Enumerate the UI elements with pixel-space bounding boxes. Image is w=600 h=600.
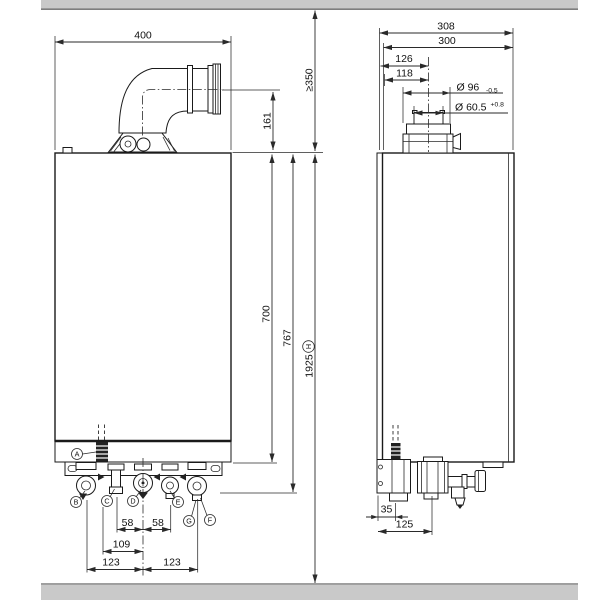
dim-depth-308: 308 (437, 21, 455, 33)
dim-height-700: 700 (261, 305, 273, 323)
condensate-siphon-side (391, 425, 401, 462)
dim-109: 109 (113, 539, 131, 551)
casing-top-clip (63, 148, 72, 154)
flue-end-cap (213, 64, 221, 114)
flue-base (403, 134, 453, 153)
floor-slab (41, 584, 578, 600)
gas-cock-side (452, 487, 465, 498)
dim-dia-60-5-tolerance: +0.8 (491, 102, 505, 109)
dim-126: 126 (395, 53, 413, 65)
connection-group-front (65, 462, 222, 501)
wall-mounting-rail (377, 153, 383, 460)
callout-d: D (130, 497, 135, 506)
dim-height-767: 767 (282, 329, 294, 347)
flue-elbow (109, 64, 225, 152)
dim-dia-96: Ø 96 (457, 82, 480, 94)
front-casing (55, 153, 231, 441)
dim-35: 35 (381, 504, 393, 516)
union-nut (162, 464, 178, 470)
connection-group-side (377, 457, 486, 509)
union-nut (108, 464, 124, 470)
union-nut (76, 463, 96, 470)
callout-a: A (75, 450, 80, 459)
dim-height-1925: 1925 (304, 354, 316, 378)
side-view (377, 57, 514, 509)
dim-123-right: 123 (163, 557, 181, 569)
dim-58-right: 58 (152, 517, 164, 529)
casing-bottom-lip (483, 462, 503, 468)
callout-b: B (74, 498, 79, 507)
bracket-side (377, 460, 411, 494)
dim-clearance-350: ≥350 (304, 68, 316, 91)
front-view (55, 64, 231, 501)
union-nut (188, 463, 206, 470)
drain-stub (390, 493, 408, 501)
valve-knob (475, 471, 486, 492)
gas-pipe-side (448, 477, 462, 488)
valve-assembly-side (418, 462, 449, 494)
dim-125: 125 (396, 519, 414, 531)
ceiling-slab (41, 0, 578, 9)
valve-c (110, 470, 123, 494)
drawing-canvas: 400 161 ≥350 700 767 1925 H 58 58 109 (0, 0, 600, 600)
valve-f (188, 477, 207, 501)
dim-dia-60-5: Ø 60.5 (455, 102, 487, 114)
dim-flue-161: 161 (262, 112, 274, 130)
dim-58-left: 58 (122, 517, 134, 529)
callout-f: F (208, 516, 213, 525)
side-casing (383, 153, 515, 462)
callout-e: E (176, 498, 181, 507)
callout-g: G (186, 517, 192, 526)
dim-depth-300: 300 (438, 35, 456, 47)
dim-width-400: 400 (134, 30, 152, 42)
height-ref-h: H (304, 344, 313, 349)
flue-elbow-pipe (119, 69, 213, 134)
top-connection-port (120, 136, 136, 152)
top-connection-port (137, 138, 150, 151)
dim-123-left: 123 (102, 557, 120, 569)
dim-118: 118 (396, 68, 413, 80)
dim-dia-96-tolerance: -0.5 (486, 88, 498, 95)
valve-e (162, 477, 179, 499)
flue-spout (453, 134, 461, 150)
valve-b (77, 476, 96, 500)
boiler-dimensional-drawing: 400 161 ≥350 700 767 1925 H 58 58 109 (0, 0, 600, 600)
callout-c: C (104, 497, 109, 506)
